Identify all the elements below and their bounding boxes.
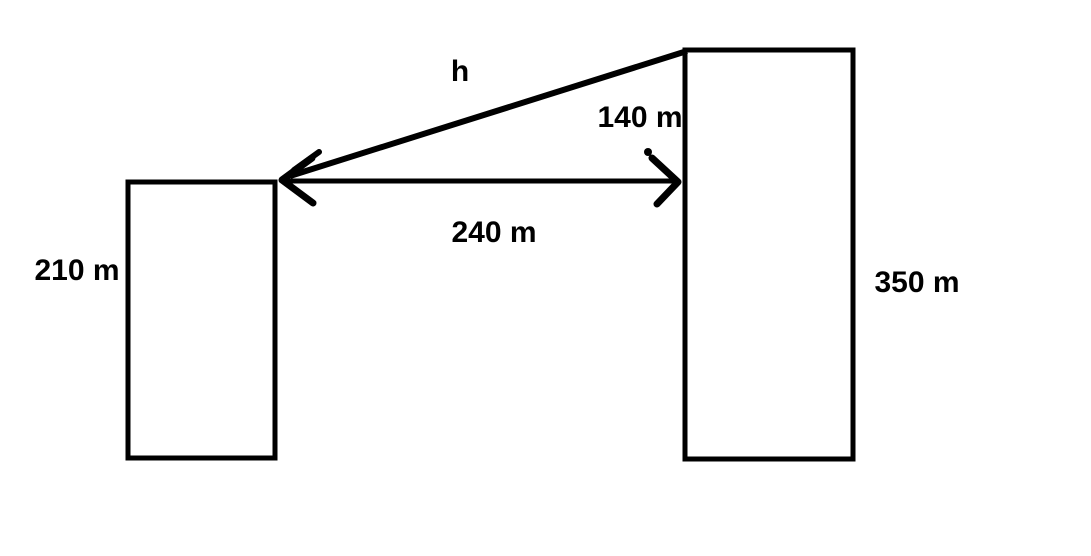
left-building-rect [128, 182, 275, 458]
right-building-rect [685, 50, 853, 459]
ink-dot [644, 148, 652, 156]
label-horizontal-distance: 240 m [451, 216, 536, 249]
label-hypotenuse: h [451, 55, 469, 88]
geometry-diagram: h 140 m 240 m 210 m 350 m [0, 0, 1091, 556]
label-right-building-height: 350 m [874, 266, 959, 299]
diagram-canvas: h 140 m 240 m 210 m 350 m [0, 0, 1091, 556]
label-height-difference: 140 m [597, 101, 682, 134]
label-left-building-height: 210 m [34, 254, 119, 287]
